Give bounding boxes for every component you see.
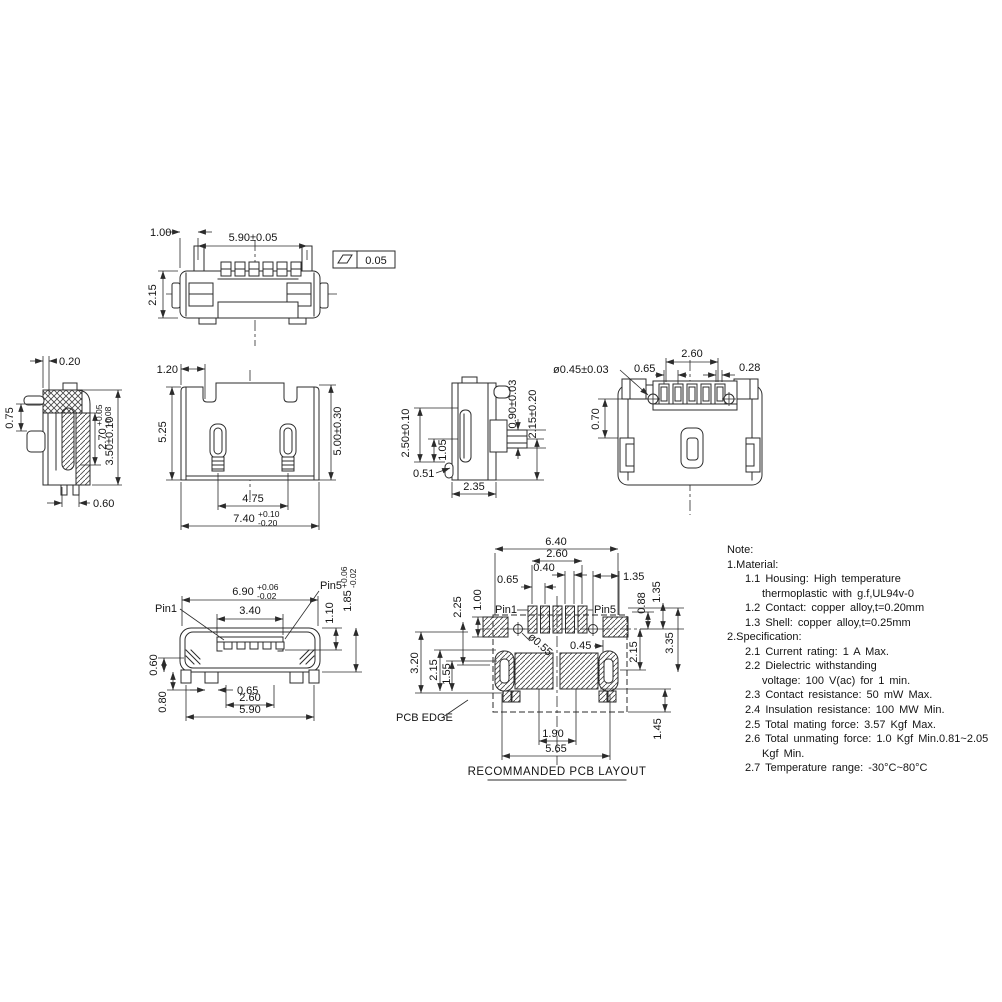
dim-label: 5.90 <box>239 704 260 716</box>
dim-label: 3.50±0.10 <box>104 417 116 466</box>
note-line: Kgf Min. <box>727 747 1002 762</box>
dim-label: 2.15 <box>428 659 440 680</box>
contact-pads <box>659 384 725 404</box>
note-line: 1.2 Contact: copper alloy,t=0.20mm <box>727 601 1002 616</box>
dim-label: 2.25 <box>452 596 464 617</box>
note-line: thermoplastic with g.f,UL94v-0 <box>727 587 1002 602</box>
dim-label: 5.90±0.05 <box>229 232 278 244</box>
dim-label: 0.75 <box>4 407 16 428</box>
pin5-label: Pin5 <box>594 604 616 616</box>
pcb-layout-view: 6.40 2.60 0.40 0.65 1.35 0.88 1.35 3.35 … <box>396 536 684 780</box>
dim-label: 0.80 <box>157 691 169 712</box>
dim-label: 6.40 <box>545 536 566 548</box>
svg-text:7.40: 7.40 <box>233 513 254 525</box>
dim-label: 2.60 <box>239 692 260 704</box>
contact-pin <box>210 424 226 471</box>
dim-label: 0.60 <box>93 498 114 510</box>
svg-text:-0.02: -0.02 <box>257 591 277 601</box>
svg-text:1.85: 1.85 <box>342 590 354 611</box>
svg-text:-0.02: -0.02 <box>348 568 358 588</box>
dim-label: 1.00 <box>150 227 171 239</box>
pcb-edge-label: PCB EDGE <box>396 712 453 724</box>
front-view: 1.20 5.25 5.00±0.30 4.75 7.40 +0.10 -0.2… <box>157 364 344 530</box>
dim-label: 1.10 <box>324 602 336 623</box>
dim-label: 0.60 <box>148 654 160 675</box>
dim-label: 0.70 <box>590 408 602 429</box>
bottom-view: ø0.45±0.03 2.60 0.65 0.28 0.70 <box>553 348 762 515</box>
dim-label: 1.35 <box>623 571 644 583</box>
flatness-value: 0.05 <box>365 255 386 267</box>
top-view: 1.00 5.90±0.05 2.15 0.05 <box>147 227 395 346</box>
dim-label: 0.88 <box>636 592 648 613</box>
dim-label: 2.35 <box>463 481 484 493</box>
dim-label: 1.20 <box>157 364 178 376</box>
slot-pad <box>599 651 618 691</box>
contact-pin <box>280 424 296 471</box>
note-line: 1.Material: <box>727 558 1002 573</box>
dim-label: 3.35 <box>664 632 676 653</box>
note-line: 2.5 Total mating force: 3.57 Kgf Max. <box>727 718 1002 733</box>
dim-label: 2.60 <box>546 548 567 560</box>
dim-label: 2.15 <box>628 641 640 662</box>
note-line: voltage: 100 V(ac) for 1 min. <box>727 674 1002 689</box>
note-line: Note: <box>727 543 1002 558</box>
dim-label: 1.55 <box>441 663 453 684</box>
note-line: 1.1 Housing: High temperature <box>727 572 1002 587</box>
svg-text:6.90: 6.90 <box>232 586 253 598</box>
drawing-canvas: 1.00 5.90±0.05 2.15 0.05 0.20 <box>0 0 1002 1002</box>
dim-label: 0.65 <box>634 363 655 375</box>
dim-label-stacked: 7.40 +0.10 -0.20 <box>233 509 279 528</box>
note-line: 2.4 Insulation resistance: 100 MW Min. <box>727 703 1002 718</box>
dim-label: 0.40 <box>533 562 554 574</box>
dim-label: 2.60 <box>681 348 702 360</box>
slot-pad <box>495 651 514 691</box>
dim-label: 2.15 <box>147 284 159 305</box>
dim-label: 5.00±0.30 <box>332 407 344 456</box>
dim-label: 1.45 <box>652 718 664 739</box>
mating-face-view: Pin1 Pin5 6.90 +0.06 -0.02 3.40 1.10 1.8… <box>148 566 362 721</box>
note-line: 1.3 Shell: copper alloy,t=0.25mm <box>727 616 1002 631</box>
dim-label: 0.90±0.03 <box>507 380 519 429</box>
note-line: 2.6 Total unmating force: 1.0 Kgf Min.0.… <box>727 732 1002 747</box>
dim-label: ø0.45±0.03 <box>553 364 609 376</box>
dim-label: 3.20 <box>409 652 421 673</box>
pin1-label: Pin1 <box>495 604 517 616</box>
dim-label: 2.50±0.10 <box>400 409 412 458</box>
dim-label: 3.40 <box>239 605 260 617</box>
notes-block: Note: 1.Material: 1.1 Housing: High temp… <box>727 543 1002 776</box>
dim-label: 1.90 <box>542 728 563 740</box>
flatness-tolerance-frame: 0.05 <box>333 251 395 268</box>
dim-label: 0.20 <box>59 356 80 368</box>
dim-label: 0.28 <box>739 362 760 374</box>
note-line: 2.3 Contact resistance: 50 mW Max. <box>727 688 1002 703</box>
note-line: 2.7 Temperature range: -30°C~80°C <box>727 761 1002 776</box>
drill-hole <box>586 622 600 636</box>
note-line: 2.1 Current rating: 1 A Max. <box>727 645 1002 660</box>
dim-label-stacked: 1.85 +0.06 -0.02 <box>339 566 358 611</box>
pcb-layout-caption: RECOMMANDED PCB LAYOUT <box>468 766 647 778</box>
dim-label-stacked: 6.90 +0.06 -0.02 <box>232 582 278 601</box>
note-line: 2.2 Dielectric withstanding <box>727 659 1002 674</box>
dim-label: 5.65 <box>545 743 566 755</box>
dim-label: 0.45 <box>570 640 591 652</box>
dim-label: 0.51 <box>413 468 434 480</box>
side-section-view: 0.20 0.75 2.70 +0.05 -0.08 3.50±0.10 0.6… <box>4 356 122 510</box>
pin-pads <box>528 606 587 633</box>
dim-label: 1.00 <box>472 589 484 610</box>
side-view: 2.50±0.10 1.05 0.51 2.35 0.90±0.03 2.15±… <box>400 377 546 498</box>
svg-text:-0.20: -0.20 <box>258 518 278 528</box>
dim-label: 0.65 <box>497 574 518 586</box>
dim-label: 4.75 <box>242 493 263 505</box>
dim-label: 1.35 <box>651 581 663 602</box>
engineering-drawing: 1.00 5.90±0.05 2.15 0.05 0.20 <box>0 0 1002 1002</box>
dim-label: 5.25 <box>157 421 169 442</box>
pin1-label: Pin1 <box>155 603 177 615</box>
dim-label: 2.15±0.20 <box>527 390 539 439</box>
note-line: 2.Specification: <box>727 630 1002 645</box>
dim-label: 1.05 <box>437 439 449 460</box>
